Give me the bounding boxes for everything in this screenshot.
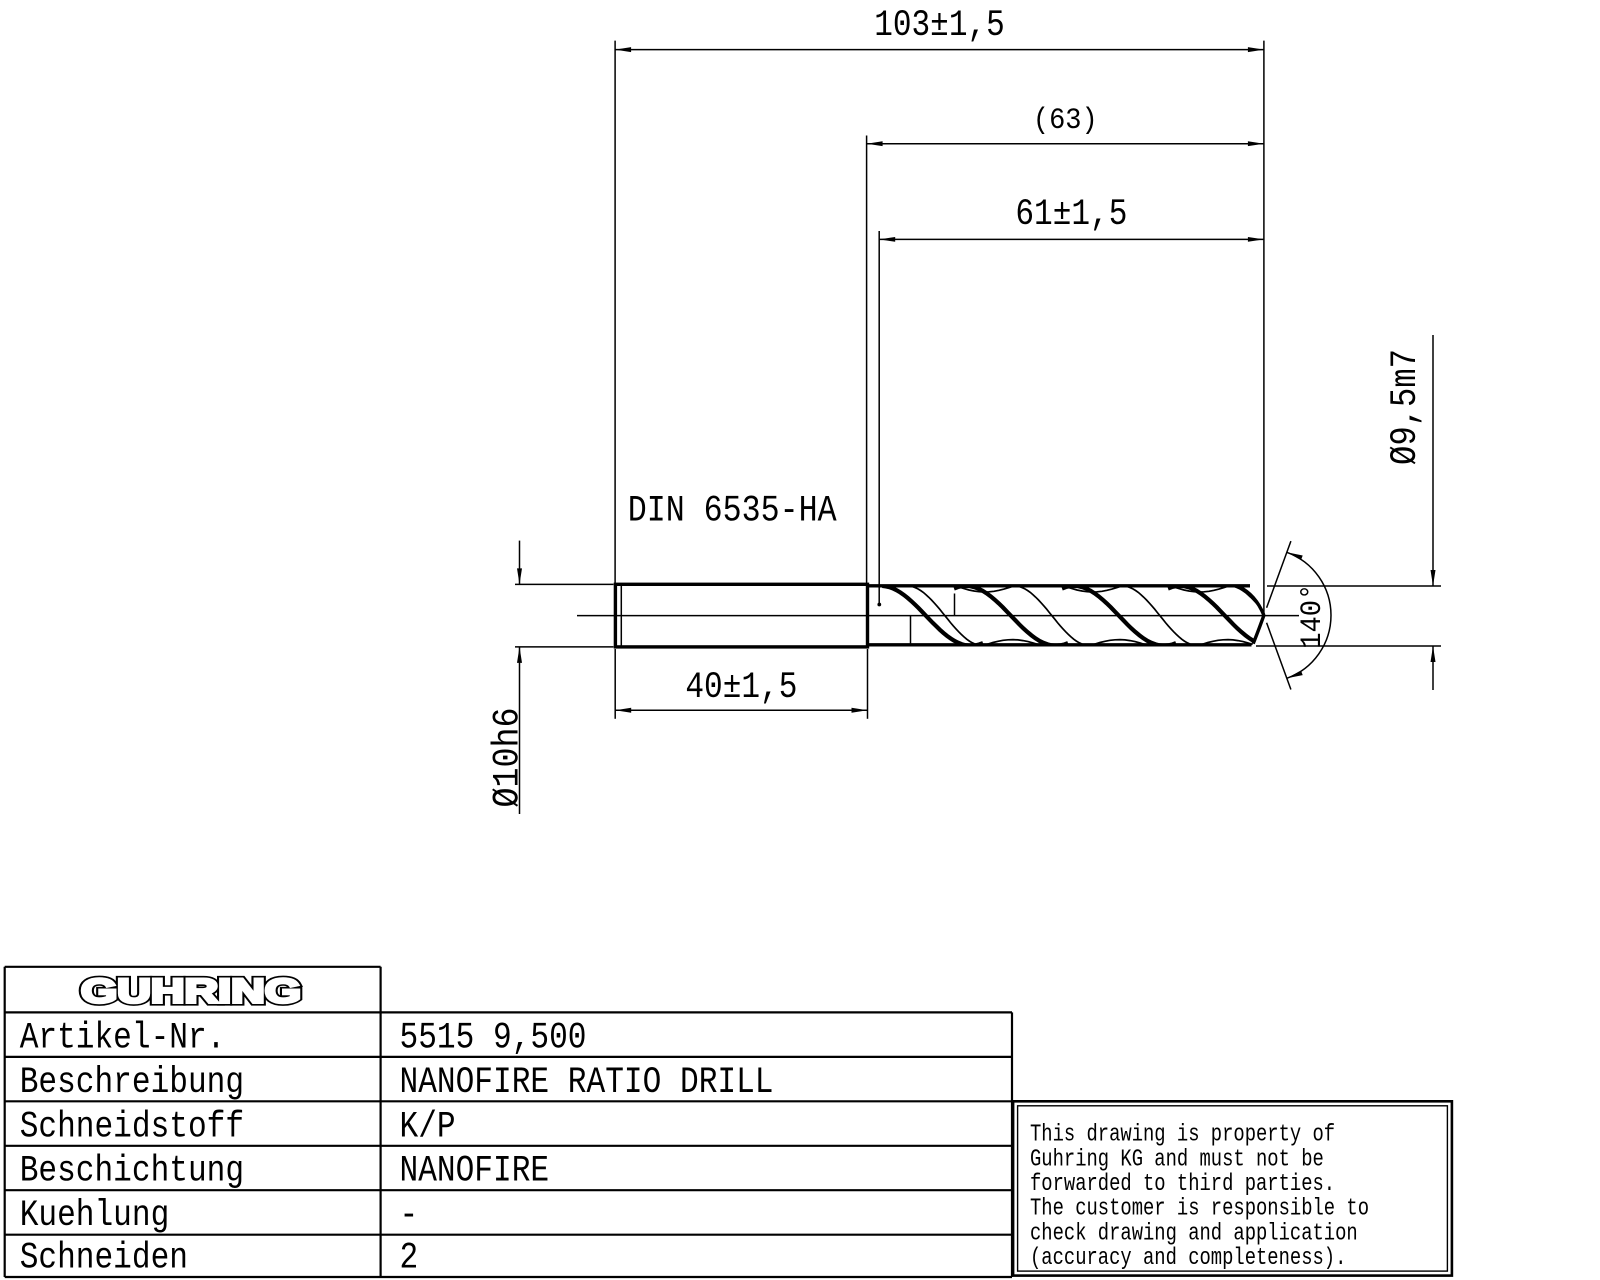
svg-text:NANOFIRE: NANOFIRE <box>400 1151 550 1193</box>
svg-text:Beschreibung: Beschreibung <box>20 1062 244 1104</box>
svg-text:Ø9,5m7: Ø9,5m7 <box>1385 349 1427 465</box>
svg-text:-: - <box>400 1195 419 1237</box>
svg-text:Beschichtung: Beschichtung <box>20 1151 244 1193</box>
svg-text:forwarded to third parties.: forwarded to third parties. <box>1030 1171 1335 1198</box>
svg-text:40±1,5: 40±1,5 <box>685 667 797 709</box>
svg-text:check drawing and application: check drawing and application <box>1030 1220 1358 1247</box>
svg-text:140°: 140° <box>1296 584 1330 649</box>
svg-text:Kuehlung: Kuehlung <box>20 1195 170 1237</box>
svg-text:K/P: K/P <box>400 1106 456 1148</box>
svg-text:Guhring KG and must not be: Guhring KG and must not be <box>1030 1146 1324 1173</box>
svg-text:This drawing is property of: This drawing is property of <box>1030 1122 1335 1149</box>
svg-text:Artikel-Nr.: Artikel-Nr. <box>20 1017 226 1059</box>
svg-text:Ø10h6: Ø10h6 <box>488 708 530 808</box>
svg-text:DIN 6535-HA: DIN 6535-HA <box>628 490 838 532</box>
svg-text:61±1,5: 61±1,5 <box>1015 194 1127 236</box>
svg-text:NANOFIRE RATIO DRILL: NANOFIRE RATIO DRILL <box>400 1062 774 1104</box>
svg-text:Schneidstoff: Schneidstoff <box>20 1106 244 1148</box>
svg-text:Schneiden: Schneiden <box>20 1238 188 1280</box>
svg-text:GUHRING: GUHRING <box>81 973 301 1011</box>
svg-text:The customer is responsible to: The customer is responsible to <box>1030 1196 1369 1223</box>
svg-text:(accuracy and completeness).: (accuracy and completeness). <box>1030 1245 1346 1272</box>
svg-text:103±1,5: 103±1,5 <box>874 5 1005 47</box>
svg-text:5515 9,500: 5515 9,500 <box>400 1017 587 1059</box>
svg-text:2: 2 <box>400 1238 419 1280</box>
svg-text:(63): (63) <box>1033 103 1098 137</box>
